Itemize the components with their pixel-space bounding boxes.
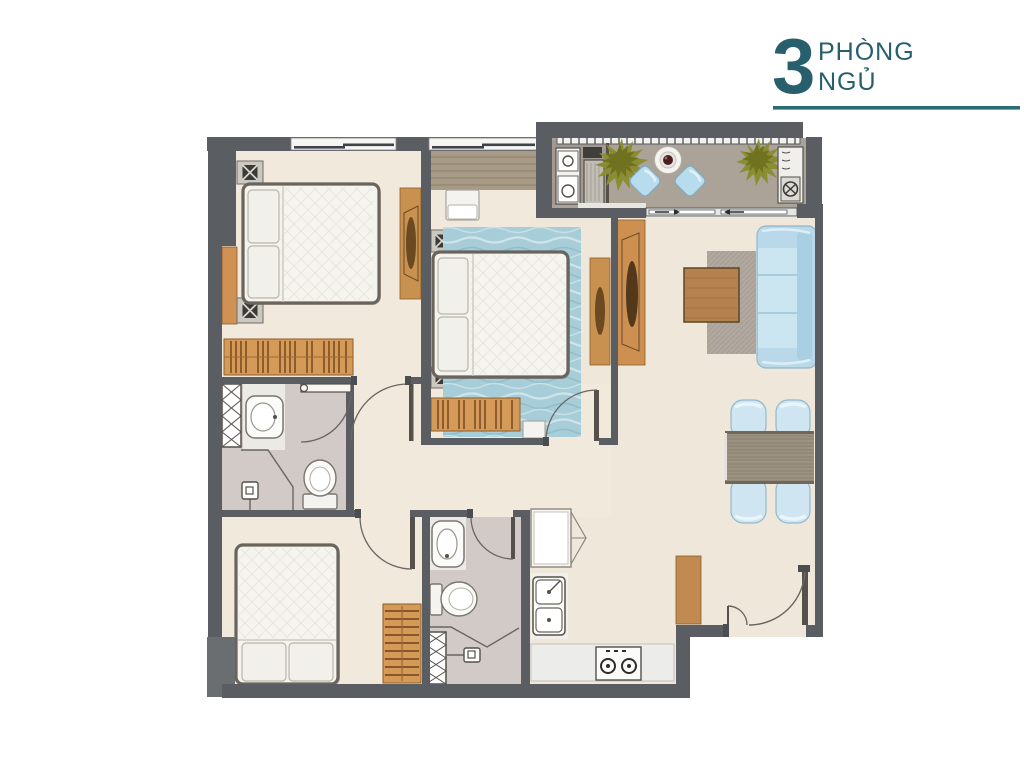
svg-text:NGỦ: NGỦ [818, 66, 877, 96]
svg-text:PHÒNG: PHÒNG [818, 37, 915, 66]
svg-text:3: 3 [772, 22, 815, 110]
